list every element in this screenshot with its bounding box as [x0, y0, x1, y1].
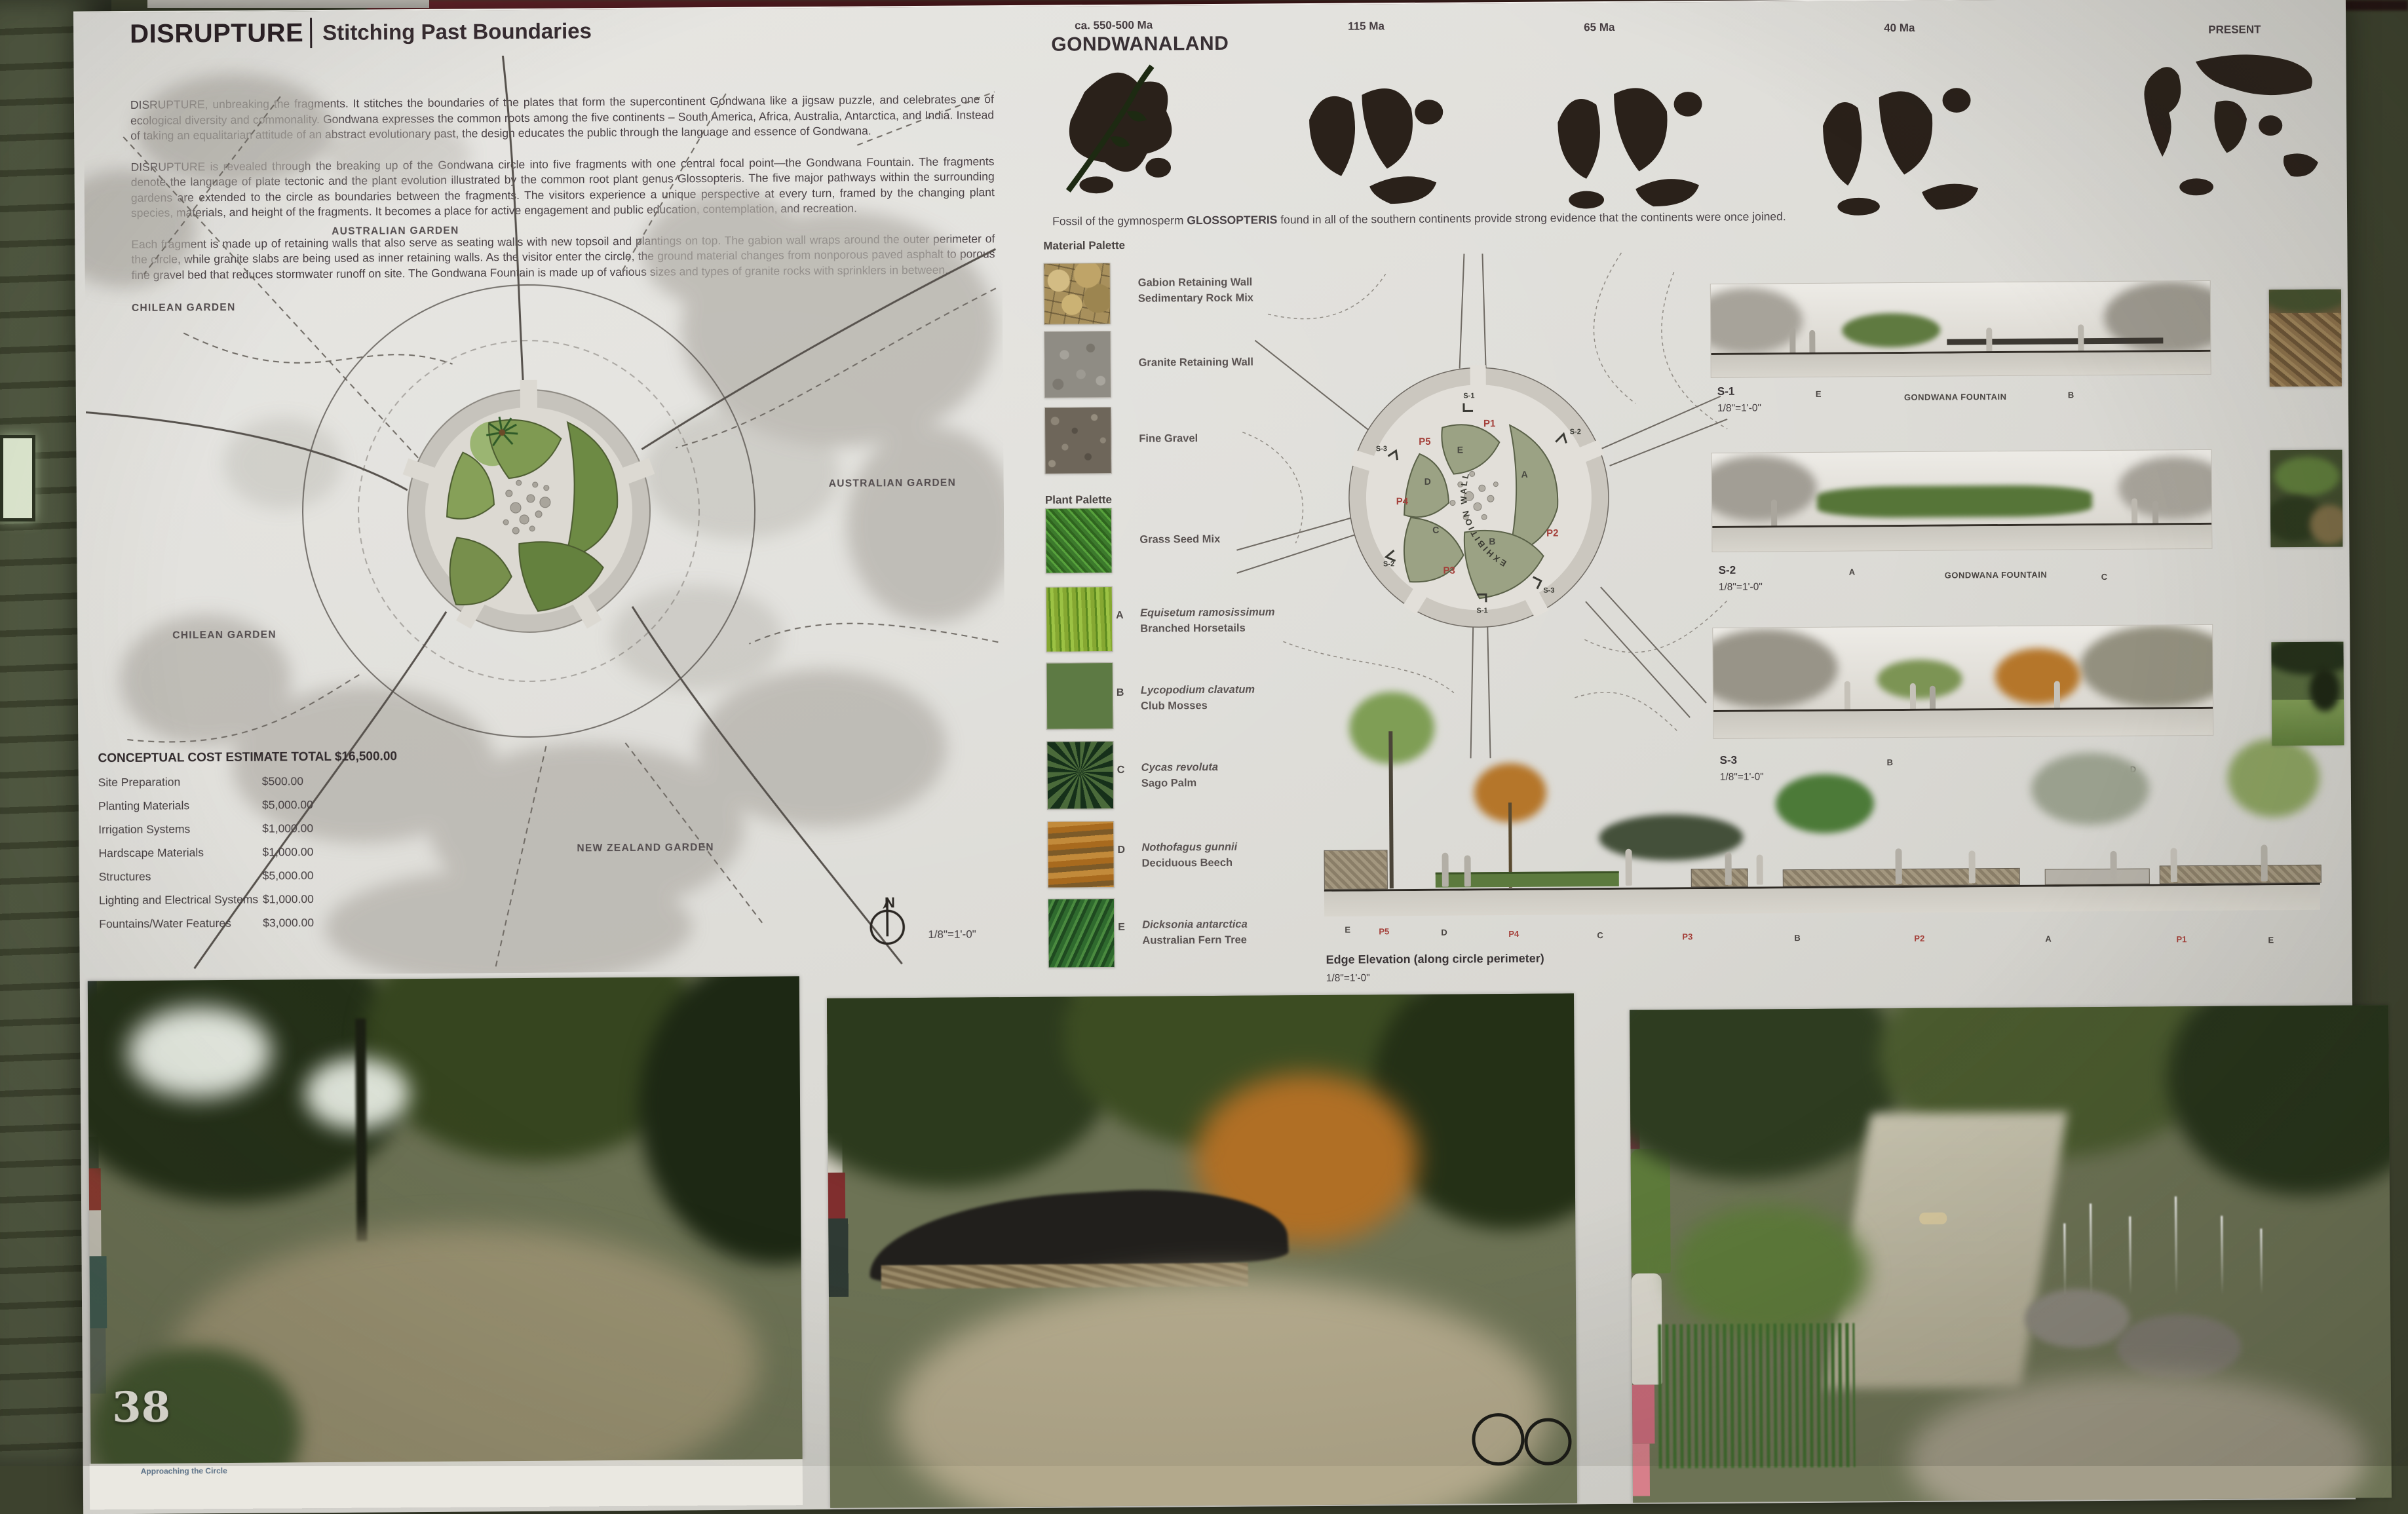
garden-label-australian-1: AUSTRALIAN GARDEN: [332, 225, 459, 238]
plant-common-name: Sago Palm: [1141, 777, 1196, 790]
edge-label: C: [1597, 930, 1603, 940]
plant-common-name: Australian Fern Tree: [1142, 934, 1247, 947]
section-label-center: GONDWANA FOUNTAIN: [1904, 392, 2007, 402]
garden-label-chilean-2: CHILEAN GARDEN: [172, 629, 277, 641]
cost-estimate-title: CONCEPTUAL COST ESTIMATE TOTAL $16,500.0…: [98, 750, 318, 766]
svg-text:S-1: S-1: [1476, 607, 1487, 615]
plant-palette-header: Plant Palette: [1045, 493, 1112, 507]
plant-letter: E: [1118, 922, 1125, 934]
material-swatch-granite: [1044, 331, 1111, 398]
garden-label-new-zealand: NEW ZEALAND GARDEN: [577, 842, 714, 854]
edge-label: P2: [1914, 934, 1924, 943]
section-drawing-s1: [1710, 280, 2211, 378]
master-plan-scale: 1/8"=1'-0": [928, 928, 976, 941]
svg-text:S-3: S-3: [1376, 445, 1387, 453]
title-divider: [310, 18, 312, 48]
fragment-label-a: A: [1521, 469, 1528, 480]
edge-label: P1: [2176, 934, 2187, 944]
edge-label: P3: [1682, 932, 1692, 941]
svg-text:S-2: S-2: [1383, 560, 1394, 568]
plant-common-name: Club Mosses: [1141, 700, 1208, 713]
section-id: S-2: [1719, 564, 1736, 577]
cost-row: Fountains/Water Features$3,000.00: [99, 916, 319, 931]
plant-common-name: Deciduous Beech: [1142, 857, 1233, 870]
plant-latin-name: Dicksonia antarctica: [1142, 918, 1248, 932]
cost-row: Hardscape Materials$1,000.00: [98, 845, 318, 860]
plant-letter: A: [1116, 610, 1124, 622]
continent-map-present: [2128, 43, 2332, 208]
context-photo-lawn: [2271, 642, 2344, 746]
photo-exhibition-wall: [827, 993, 1577, 1508]
timeline-era-4: 40 Ma: [1884, 22, 1915, 35]
continent-map-115ma: [1290, 62, 1470, 204]
section-label-left: A: [1849, 567, 1855, 577]
section-drawing-s2: [1711, 449, 2212, 552]
fossil-note: Fossil of the gymnosperm GLOSSOPTERIS fo…: [1052, 210, 1812, 229]
path-label-p5: P5: [1419, 436, 1430, 447]
presentation-board: DISRUPTURE Stitching Past Boundaries DIS…: [73, 0, 2356, 1514]
material-label: Fine Gravel: [1139, 432, 1198, 445]
plant-letter: C: [1117, 765, 1125, 776]
edge-elevation-scale: 1/8"=1'-0": [1326, 972, 1370, 984]
path-label-p4: P4: [1396, 496, 1409, 507]
edge-label: E: [2268, 935, 2274, 945]
edge-label: P4: [1508, 929, 1519, 939]
timeline-era-2: 115 Ma: [1348, 20, 1385, 33]
page-title: DISRUPTURE: [130, 18, 303, 49]
page-subtitle: Stitching Past Boundaries: [322, 18, 592, 45]
section-id: S-1: [1717, 385, 1735, 398]
plant-swatch-grass: [1045, 508, 1113, 574]
fragment-label-d: D: [1424, 476, 1431, 487]
cost-row: Planting Materials$5,000.00: [98, 798, 318, 813]
plant-swatch-fern-tree: [1048, 898, 1115, 968]
plant-common-name: Grass Seed Mix: [1139, 533, 1220, 546]
board-header: DISRUPTURE Stitching Past Boundaries: [130, 16, 592, 49]
garden-label-chilean-1: CHILEAN GARDEN: [132, 302, 236, 314]
fragment-label-e: E: [1457, 444, 1463, 455]
path-label-p1: P1: [1483, 418, 1495, 429]
svg-text:S-2: S-2: [1570, 428, 1581, 436]
cost-row: Irrigation Systems$1,000.00: [98, 822, 318, 837]
edge-elevation-drawing: [1323, 679, 2320, 917]
edge-elevation-title: Edge Elevation (along circle perimeter): [1326, 952, 1544, 967]
garden-label-australian-2: AUSTRALIAN GARDEN: [829, 478, 956, 490]
section-label-left: E: [1816, 389, 1822, 399]
cost-estimate-block: CONCEPTUAL COST ESTIMATE TOTAL $16,500.0…: [98, 750, 319, 931]
fossil-term: GLOSSOPTERIS: [1187, 213, 1277, 227]
material-palette-header: Material Palette: [1043, 239, 1125, 253]
material-swatch-gabion: [1044, 263, 1111, 325]
cost-row: Lighting and Electrical Systems$1,000.00: [99, 892, 319, 907]
plant-latin-name: Cycas revoluta: [1141, 761, 1219, 774]
context-photo-planting: [2270, 450, 2342, 548]
photo-caption-strip: Approaching the Circle: [90, 1459, 803, 1509]
edge-label: B: [1794, 933, 1800, 943]
background-window: [0, 435, 35, 521]
timeline-era-1: ca. 550-500 Ma: [1075, 19, 1153, 33]
cost-row: Site Preparation$500.00: [98, 774, 318, 789]
cost-row: Structures$5,000.00: [99, 869, 319, 884]
section-label-right: B: [2068, 390, 2074, 400]
section-label-center: GONDWANA FOUNTAIN: [1945, 570, 2048, 580]
edge-label: E: [1345, 925, 1350, 935]
plant-swatch-horsetails: [1046, 586, 1113, 653]
path-label-p2: P2: [1546, 528, 1558, 539]
svg-text:S-1: S-1: [1463, 392, 1474, 400]
fragment-label-b: B: [1489, 536, 1495, 546]
continent-map-65ma: [1545, 69, 1726, 211]
section-scale: 1/8"=1'-0": [1717, 402, 1761, 414]
plant-letter: B: [1117, 687, 1124, 699]
timeline-era-3: 65 Ma: [1584, 21, 1615, 34]
north-arrow-icon: N: [862, 893, 915, 953]
section-scale: 1/8"=1'-0": [1719, 581, 1763, 593]
fragment-label-c: C: [1432, 525, 1439, 535]
edge-label: P5: [1379, 926, 1389, 936]
plant-latin-name: Nothofagus gunnii: [1141, 841, 1237, 854]
edge-label: D: [1441, 928, 1447, 937]
plant-letter: D: [1117, 844, 1125, 856]
photo-fountain-plaza: [1630, 1005, 2392, 1503]
timeline-era-5: PRESENT: [2208, 23, 2261, 37]
photo-garden-path: [88, 976, 803, 1464]
continent-map-40ma: [1814, 75, 1995, 218]
material-swatch-fine-gravel: [1044, 407, 1112, 474]
context-photo-gabion: [2269, 290, 2342, 387]
background-top-panel-edge: [147, 0, 429, 8]
path-label-p3: P3: [1443, 565, 1455, 577]
plant-swatch-deciduous-beech: [1047, 821, 1115, 888]
photo-caption: Approaching the Circle: [141, 1466, 227, 1476]
plant-swatch-sago-palm: [1046, 741, 1114, 810]
gondwana-circle-plan: [402, 379, 656, 634]
section-label-right: C: [2101, 572, 2107, 582]
svg-text:S-3: S-3: [1543, 587, 1554, 595]
continent-map-gondwanaland: [1053, 48, 1195, 206]
edge-label: A: [2045, 934, 2051, 944]
page-number: 38: [112, 1383, 171, 1433]
plant-swatch-club-mosses: [1046, 662, 1114, 730]
